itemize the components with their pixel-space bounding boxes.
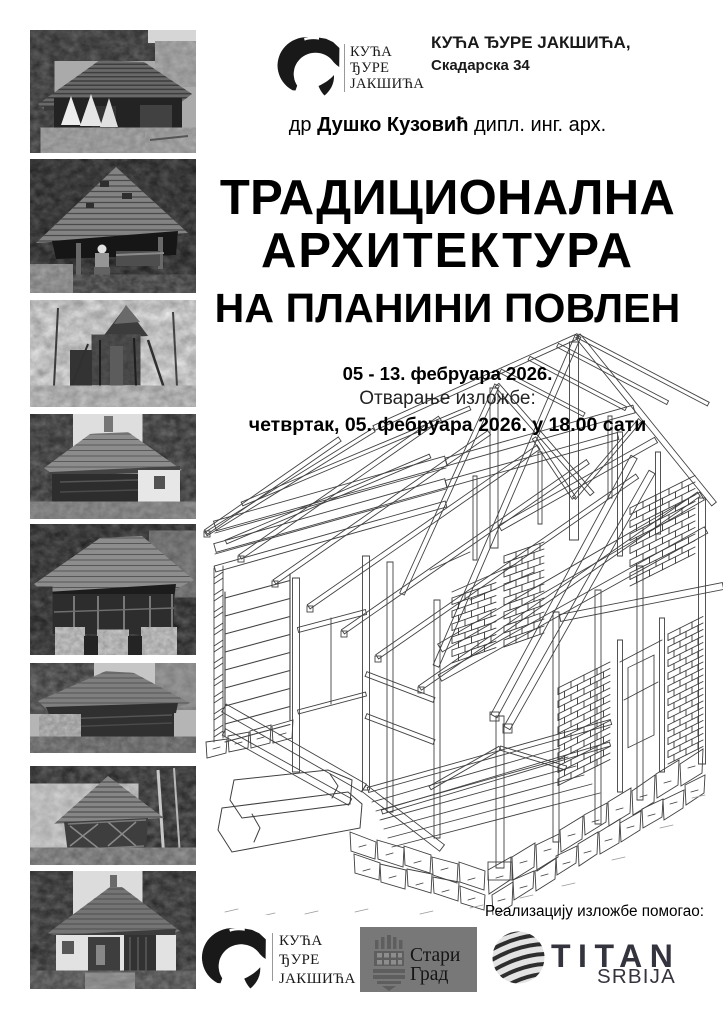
svg-text:Град: Град — [410, 964, 448, 985]
svg-text:Стари: Стари — [410, 945, 460, 966]
